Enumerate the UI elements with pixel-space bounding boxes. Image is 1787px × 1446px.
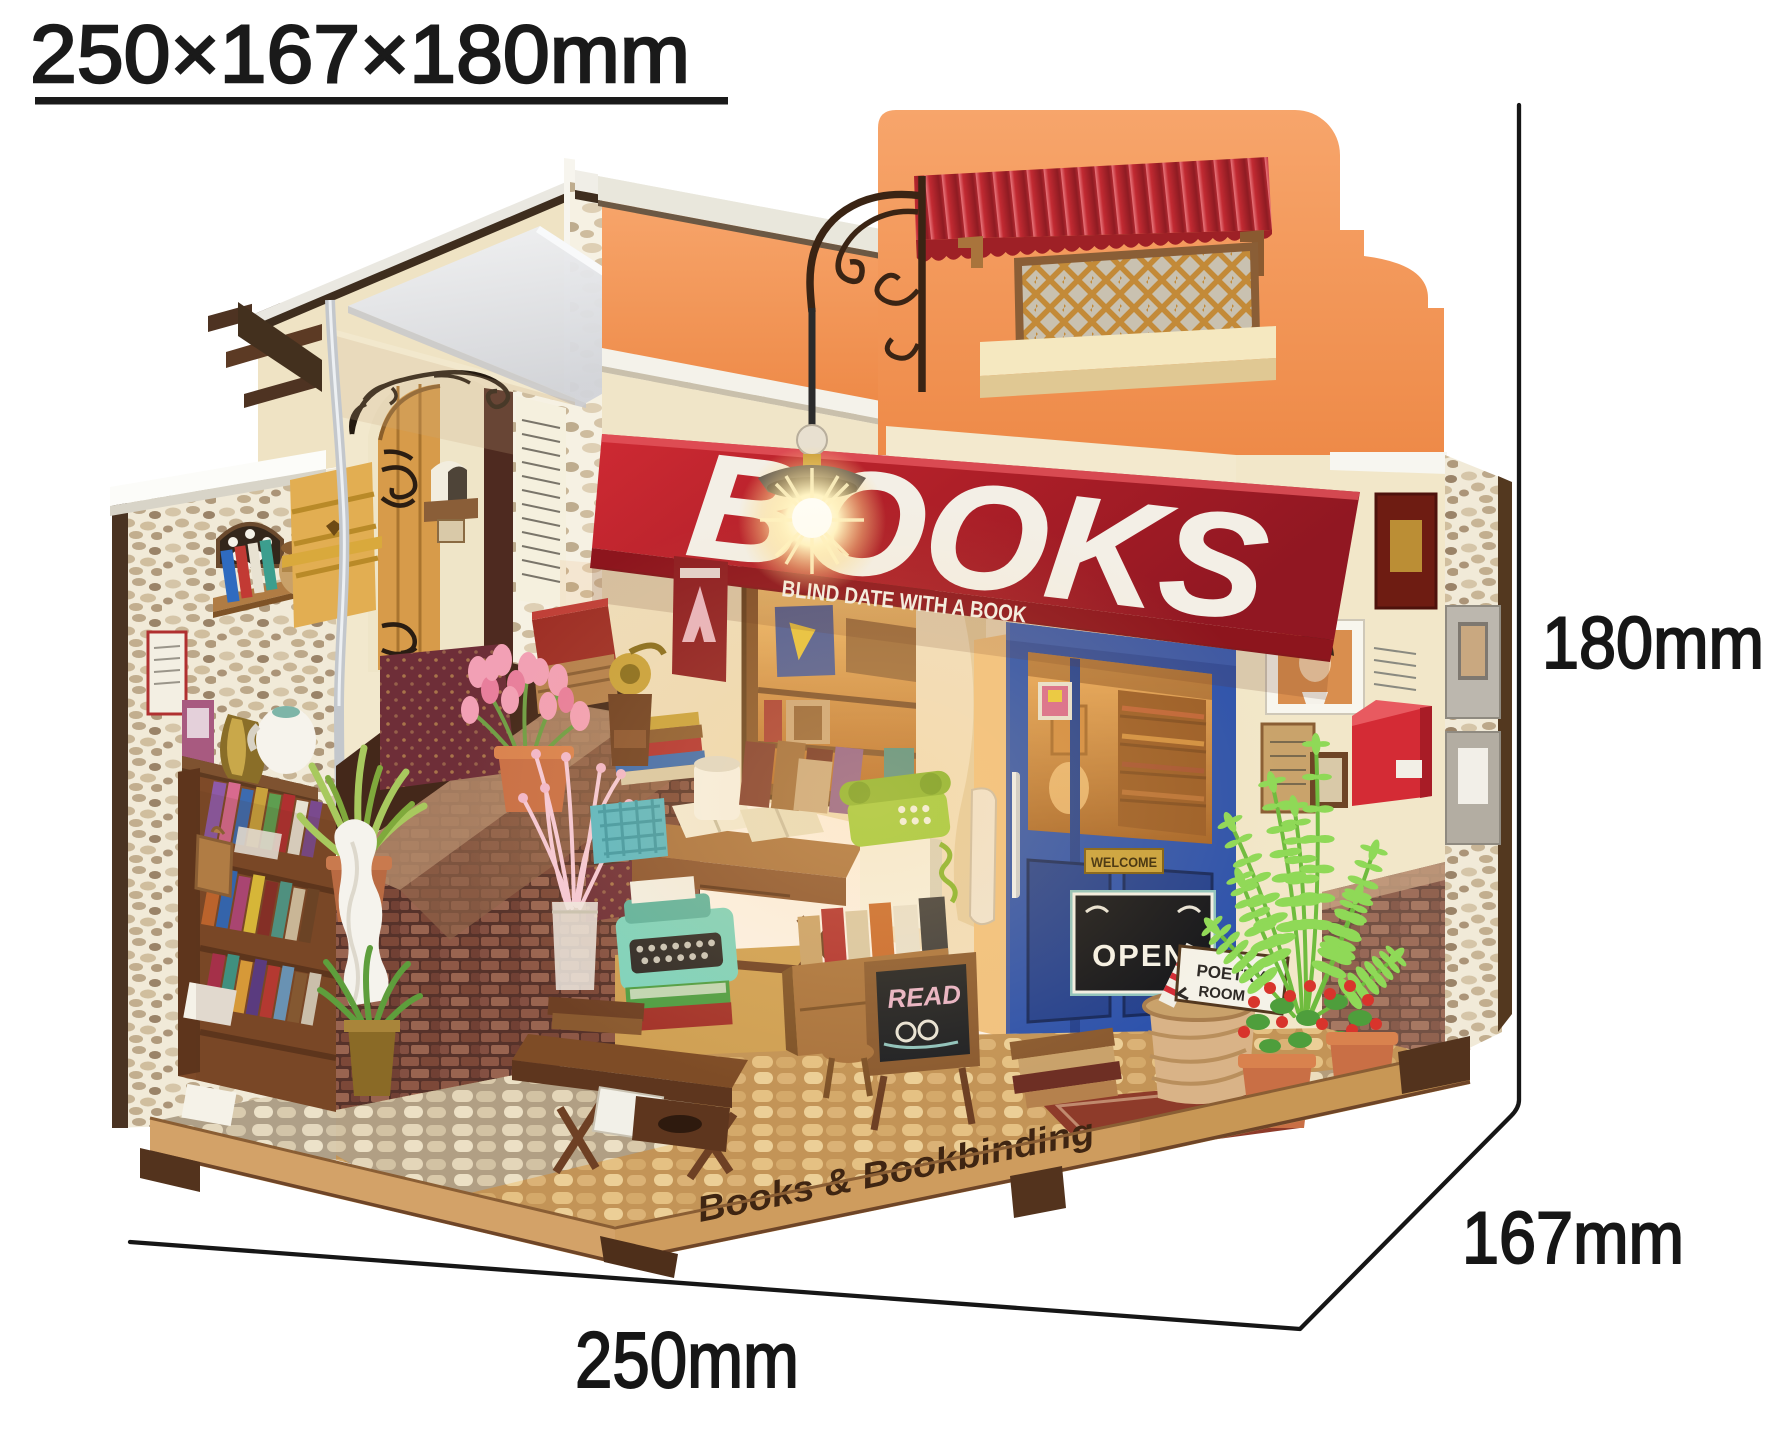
svg-text:250×167×180mm: 250×167×180mm <box>30 9 690 100</box>
svg-text:167mm: 167mm <box>1462 1198 1684 1279</box>
svg-text:180mm: 180mm <box>1542 603 1764 684</box>
svg-text:250mm: 250mm <box>575 1315 799 1404</box>
